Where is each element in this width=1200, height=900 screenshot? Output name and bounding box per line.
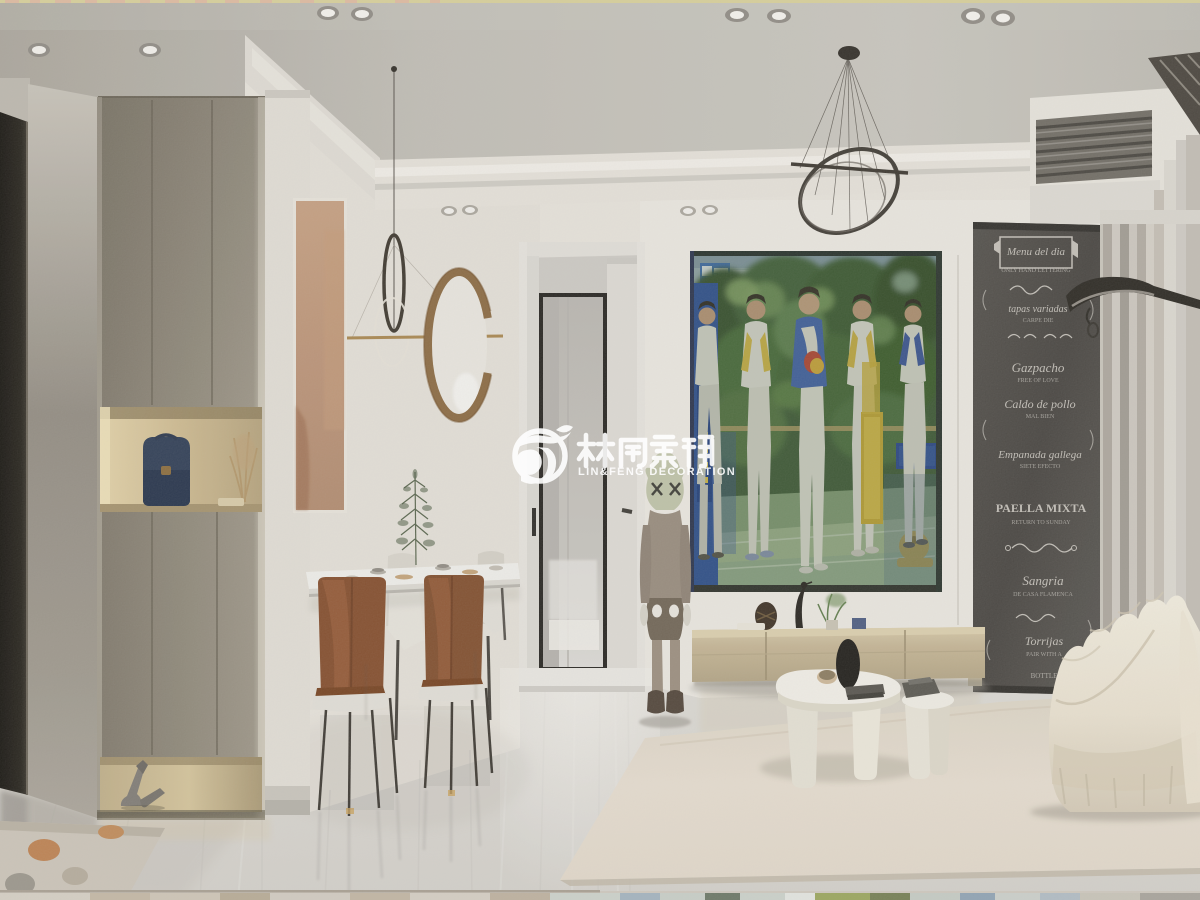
svg-text:LIN&FENG DECORATION: LIN&FENG DECORATION bbox=[578, 466, 736, 478]
